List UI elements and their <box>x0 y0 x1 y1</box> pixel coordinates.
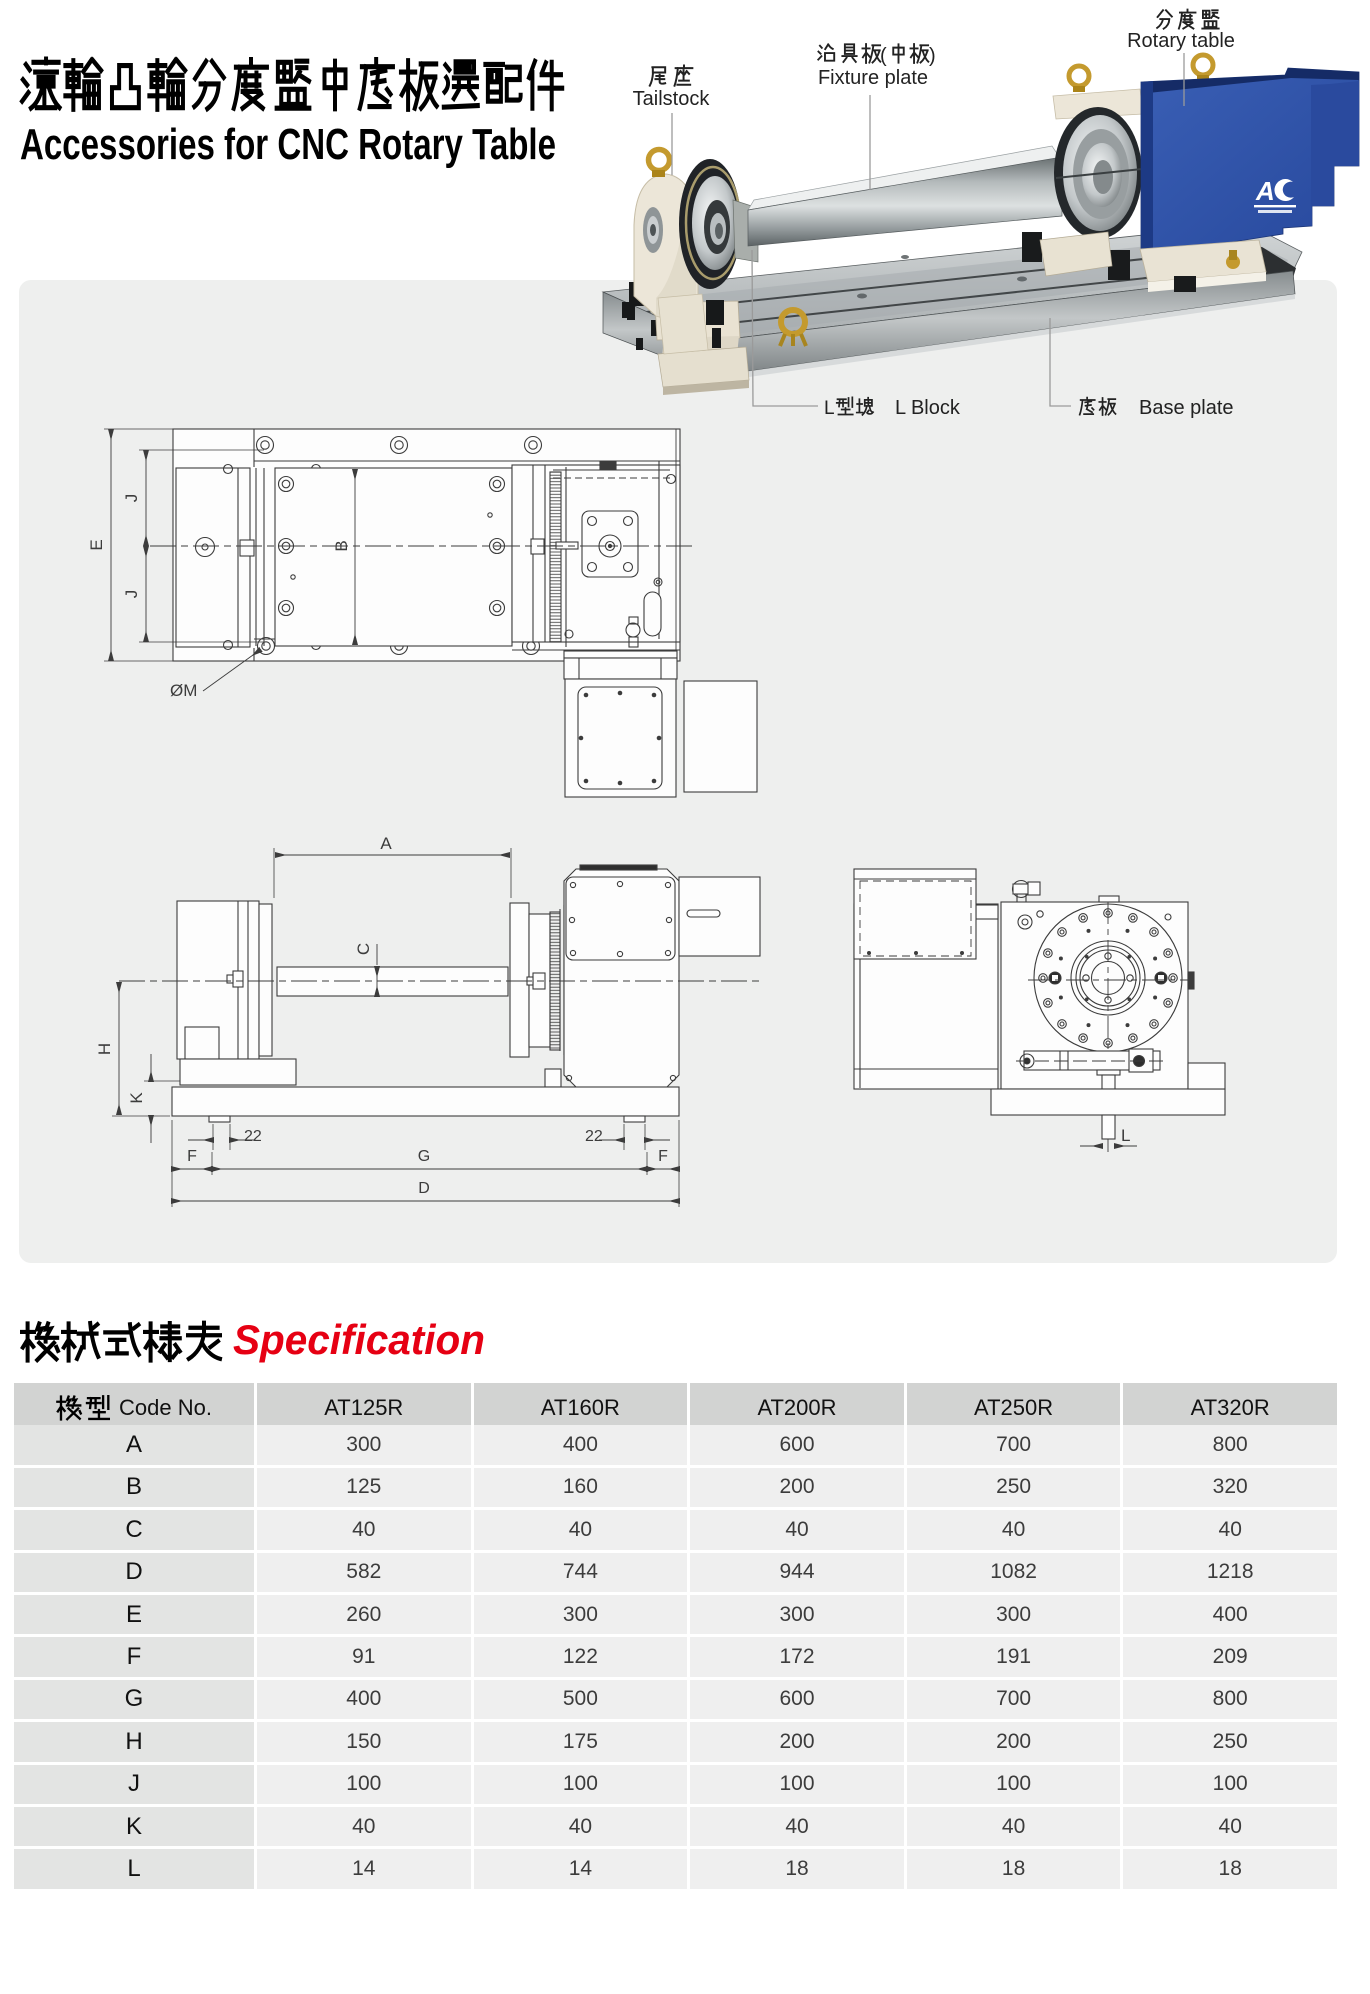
svg-text:Fixture plate: Fixture plate <box>818 67 928 89</box>
svg-text:J: J <box>122 590 141 599</box>
svg-text:A: A <box>1255 176 1275 206</box>
svg-text:Base plate: Base plate <box>1139 397 1234 419</box>
svg-text:L Block: L Block <box>895 397 961 419</box>
svg-text:J: J <box>122 494 141 503</box>
svg-text:ØM: ØM <box>170 681 197 700</box>
svg-text:K: K <box>127 1092 146 1104</box>
svg-text:H: H <box>95 1043 114 1055</box>
svg-text:G: G <box>418 1148 430 1165</box>
svg-text:E: E <box>87 539 106 550</box>
svg-text:L: L <box>824 398 835 419</box>
svg-text:F: F <box>187 1148 197 1165</box>
svg-text:Accessories for CNC Rotary Tab: Accessories for CNC Rotary Table <box>20 120 556 169</box>
svg-text:Rotary table: Rotary table <box>1127 30 1235 52</box>
svg-text:D: D <box>418 1180 430 1197</box>
svg-text:C: C <box>354 943 373 955</box>
svg-text:A: A <box>380 834 392 853</box>
svg-text:): ) <box>929 45 936 67</box>
svg-text:F: F <box>658 1148 668 1165</box>
svg-text:L: L <box>1121 1126 1130 1145</box>
svg-text:22: 22 <box>244 1128 262 1145</box>
svg-text:(: ( <box>880 45 887 67</box>
svg-text:22: 22 <box>585 1128 603 1145</box>
svg-text:Specification: Specification <box>233 1316 485 1363</box>
svg-text:Tailstock: Tailstock <box>633 88 711 110</box>
